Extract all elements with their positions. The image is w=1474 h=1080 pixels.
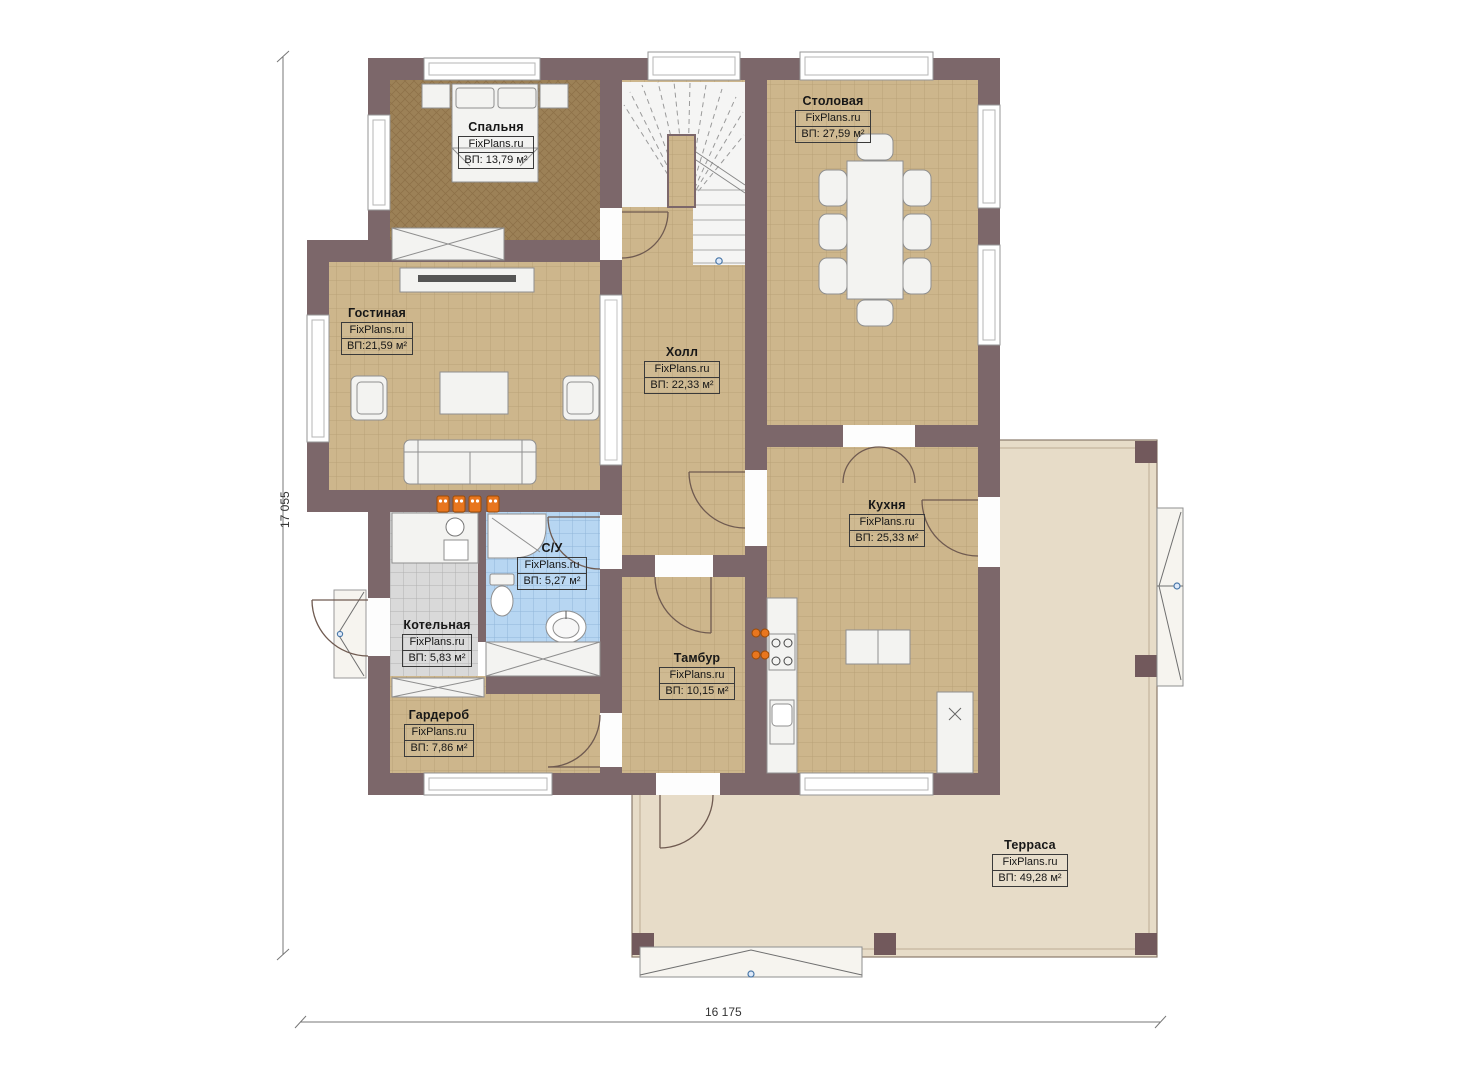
room-info-box: FixPlans.ru ВП: 22,33 м² (644, 361, 719, 394)
room-area: ВП: 13,79 м² (459, 152, 532, 168)
room-name: Терраса (985, 838, 1075, 852)
room-info-box: FixPlans.ru ВП: 49,28 м² (992, 854, 1067, 887)
room-name: Спальня (446, 120, 546, 134)
room-name: Гостиная (332, 306, 422, 320)
boiler-stoop (334, 590, 366, 678)
opening-dining-kitchen (843, 425, 915, 447)
window-dining-top (800, 52, 933, 80)
window-dining-right-1 (978, 105, 1000, 208)
room-info-box: FixPlans.ru ВП: 7,86 м² (404, 724, 473, 757)
room-label-dining: Столовая FixPlans.ru ВП: 27,59 м² (788, 94, 878, 143)
terrace-steps-bottom (640, 947, 862, 977)
stove (769, 634, 795, 670)
dimension-height-label: 17 055 (278, 491, 292, 528)
wall-hall-right (745, 58, 767, 795)
window-living-left (307, 315, 329, 442)
room-brand: FixPlans.ru (850, 515, 923, 530)
room-area: ВП: 27,59 м² (796, 126, 869, 142)
room-name: Холл (637, 345, 727, 359)
kitchen-island (846, 630, 910, 664)
armchair (563, 376, 599, 420)
opening-boiler-exterior (368, 598, 390, 656)
room-area: ВП: 5,27 м² (518, 573, 585, 589)
room-info-box: FixPlans.ru ВП: 10,15 м² (659, 667, 734, 700)
room-info-box: FixPlans.ru ВП: 13,79 м² (458, 136, 533, 169)
room-name: Гардероб (394, 708, 484, 722)
room-label-bathroom: С/У FixPlans.ru ВП: 5,27 м² (507, 541, 597, 590)
room-area: ВП: 49,28 м² (993, 870, 1066, 886)
room-label-vestibule: Тамбур FixPlans.ru ВП: 10,15 м² (652, 651, 742, 700)
opening-vestibule-door (655, 555, 713, 577)
room-area: ВП:21,59 м² (342, 338, 412, 354)
room-area: ВП: 10,15 м² (660, 683, 733, 699)
window-wardrobe-bottom (424, 773, 552, 795)
room-label-living: Гостиная FixPlans.ru ВП:21,59 м² (332, 306, 422, 355)
room-name: С/У (507, 541, 597, 555)
wardrobe-closet (392, 678, 484, 697)
terrace-steps-right (1157, 508, 1183, 686)
fridge (937, 692, 973, 773)
room-label-kitchen: Кухня FixPlans.ru ВП: 25,33 м² (842, 498, 932, 547)
room-name: Кухня (842, 498, 932, 512)
room-brand: FixPlans.ru (645, 362, 718, 377)
room-info-box: FixPlans.ru ВП: 5,27 м² (517, 557, 586, 590)
room-brand: FixPlans.ru (405, 725, 472, 740)
kitchen-counter (767, 598, 797, 773)
room-brand: FixPlans.ru (342, 323, 412, 338)
room-brand: FixPlans.ru (796, 111, 869, 126)
room-brand: FixPlans.ru (403, 635, 470, 650)
room-label-bedroom: Спальня FixPlans.ru ВП: 13,79 м² (446, 120, 546, 169)
boiler-equipment (392, 513, 478, 563)
opening-kitchen-terrace (978, 497, 1000, 567)
room-name: Тамбур (652, 651, 742, 665)
opening-hall-kitchen (745, 470, 767, 546)
room-brand: FixPlans.ru (518, 558, 585, 573)
floorplan-drawing (0, 0, 1474, 1080)
terrace-post (1135, 441, 1157, 463)
sofa (404, 440, 536, 484)
room-brand: FixPlans.ru (459, 137, 532, 152)
stair-direction-dot (716, 258, 722, 264)
room-info-box: FixPlans.ru ВП: 25,33 м² (849, 514, 924, 547)
wall-bath-wardrobe (486, 676, 600, 694)
opening-vestibule-terrace (656, 773, 720, 795)
room-name: Столовая (788, 94, 878, 108)
dimension-width-label: 16 175 (705, 1005, 742, 1019)
room-label-wardrobe: Гардероб FixPlans.ru ВП: 7,86 м² (394, 708, 484, 757)
armchair (351, 376, 387, 420)
coffee-table (440, 372, 508, 414)
opening-wardrobe-door (600, 713, 622, 767)
window-bedroom-top (424, 58, 540, 80)
room-area: ВП: 7,86 м² (405, 740, 472, 756)
room-label-hall: Холл FixPlans.ru ВП: 22,33 м² (637, 345, 727, 394)
hall-closet (486, 642, 600, 676)
opening-living-hall (600, 295, 622, 465)
room-info-box: FixPlans.ru ВП: 5,83 м² (402, 634, 471, 667)
window-dining-right-2 (978, 245, 1000, 345)
window-kitchen-bottom (800, 773, 933, 795)
window-bedroom-left (368, 115, 390, 210)
room-brand: FixPlans.ru (993, 855, 1066, 870)
stair-newel-wall (668, 135, 695, 207)
room-label-terrace: Терраса FixPlans.ru ВП: 49,28 м² (985, 838, 1075, 887)
terrace-post (1135, 933, 1157, 955)
room-info-box: FixPlans.ru ВП: 27,59 м² (795, 110, 870, 143)
room-area: ВП: 22,33 м² (645, 377, 718, 393)
window-stair-top (648, 52, 740, 80)
room-area: ВП: 5,83 м² (403, 650, 470, 666)
room-brand: FixPlans.ru (660, 668, 733, 683)
tv-console (400, 268, 534, 292)
terrace-post (1135, 655, 1157, 677)
opening-bathroom-door (600, 515, 622, 569)
opening-bedroom-door (600, 208, 622, 260)
floorplan-page: Спальня FixPlans.ru ВП: 13,79 м² Столова… (0, 0, 1474, 1080)
room-name: Котельная (392, 618, 482, 632)
bedroom-closet (392, 228, 504, 260)
room-info-box: FixPlans.ru ВП:21,59 м² (341, 322, 413, 355)
room-area: ВП: 25,33 м² (850, 530, 923, 546)
terrace-post (874, 933, 896, 955)
bathroom-sink (546, 611, 586, 643)
room-label-boiler: Котельная FixPlans.ru ВП: 5,83 м² (392, 618, 482, 667)
